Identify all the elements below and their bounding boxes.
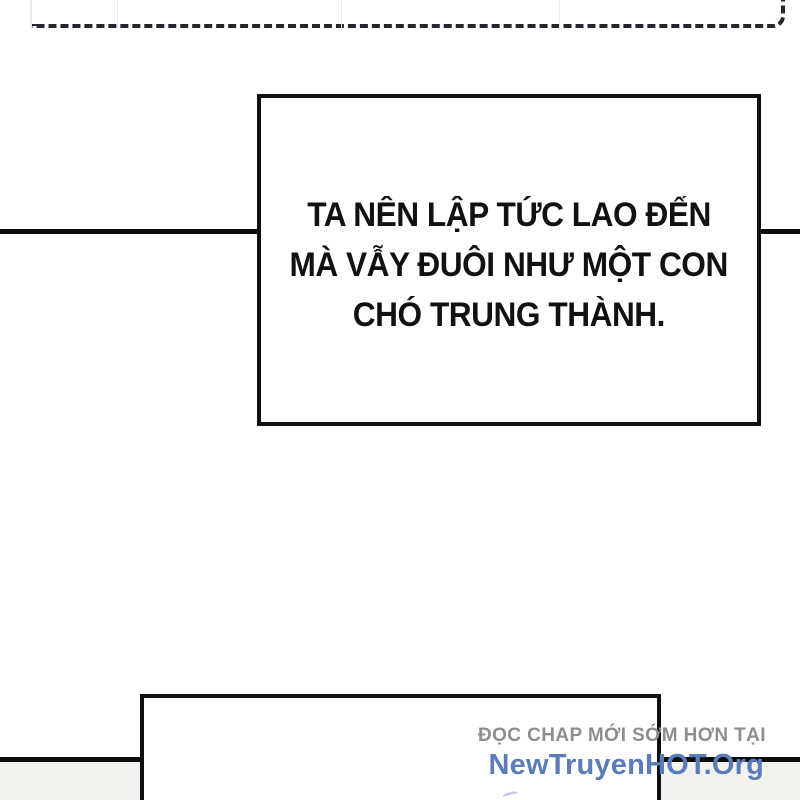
comic-page: TA NÊN LẬP TỨC LAO ĐẾN MÀ VẪY ĐUÔI NHƯ M… xyxy=(0,0,800,800)
speech-bubble-line: MÀ VẪY ĐUÔI NHƯ MỘT CON xyxy=(290,240,728,290)
speech-bubble-line: TA NÊN LẬP TỨC LAO ĐẾN xyxy=(307,190,711,240)
speech-bubble-line: CHÓ TRUNG THÀNH. xyxy=(353,290,665,340)
panel-divider-line-right xyxy=(757,229,800,234)
panel-divider-line-left xyxy=(0,229,261,234)
bottom-panel xyxy=(140,694,661,800)
dashed-panel-border xyxy=(32,0,785,28)
speech-bubble: TA NÊN LẬP TỨC LAO ĐẾN MÀ VẪY ĐUÔI NHƯ M… xyxy=(257,94,761,426)
background-art-line xyxy=(30,0,32,29)
background-art-line xyxy=(117,0,118,29)
background-art-line xyxy=(341,0,342,29)
background-art-line xyxy=(559,0,560,29)
